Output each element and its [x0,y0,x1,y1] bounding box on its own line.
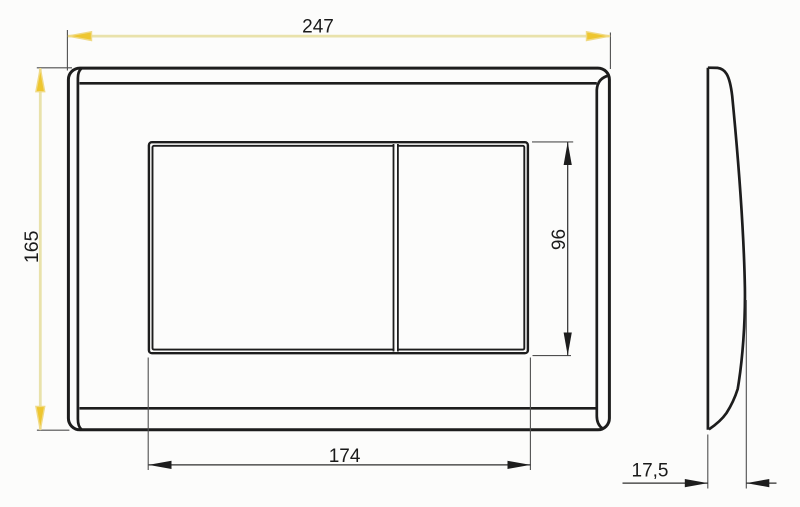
svg-text:174: 174 [329,446,361,467]
svg-text:247: 247 [302,17,334,38]
svg-text:17,5: 17,5 [632,460,669,481]
svg-text:96: 96 [549,229,570,250]
svg-text:165: 165 [21,230,43,263]
